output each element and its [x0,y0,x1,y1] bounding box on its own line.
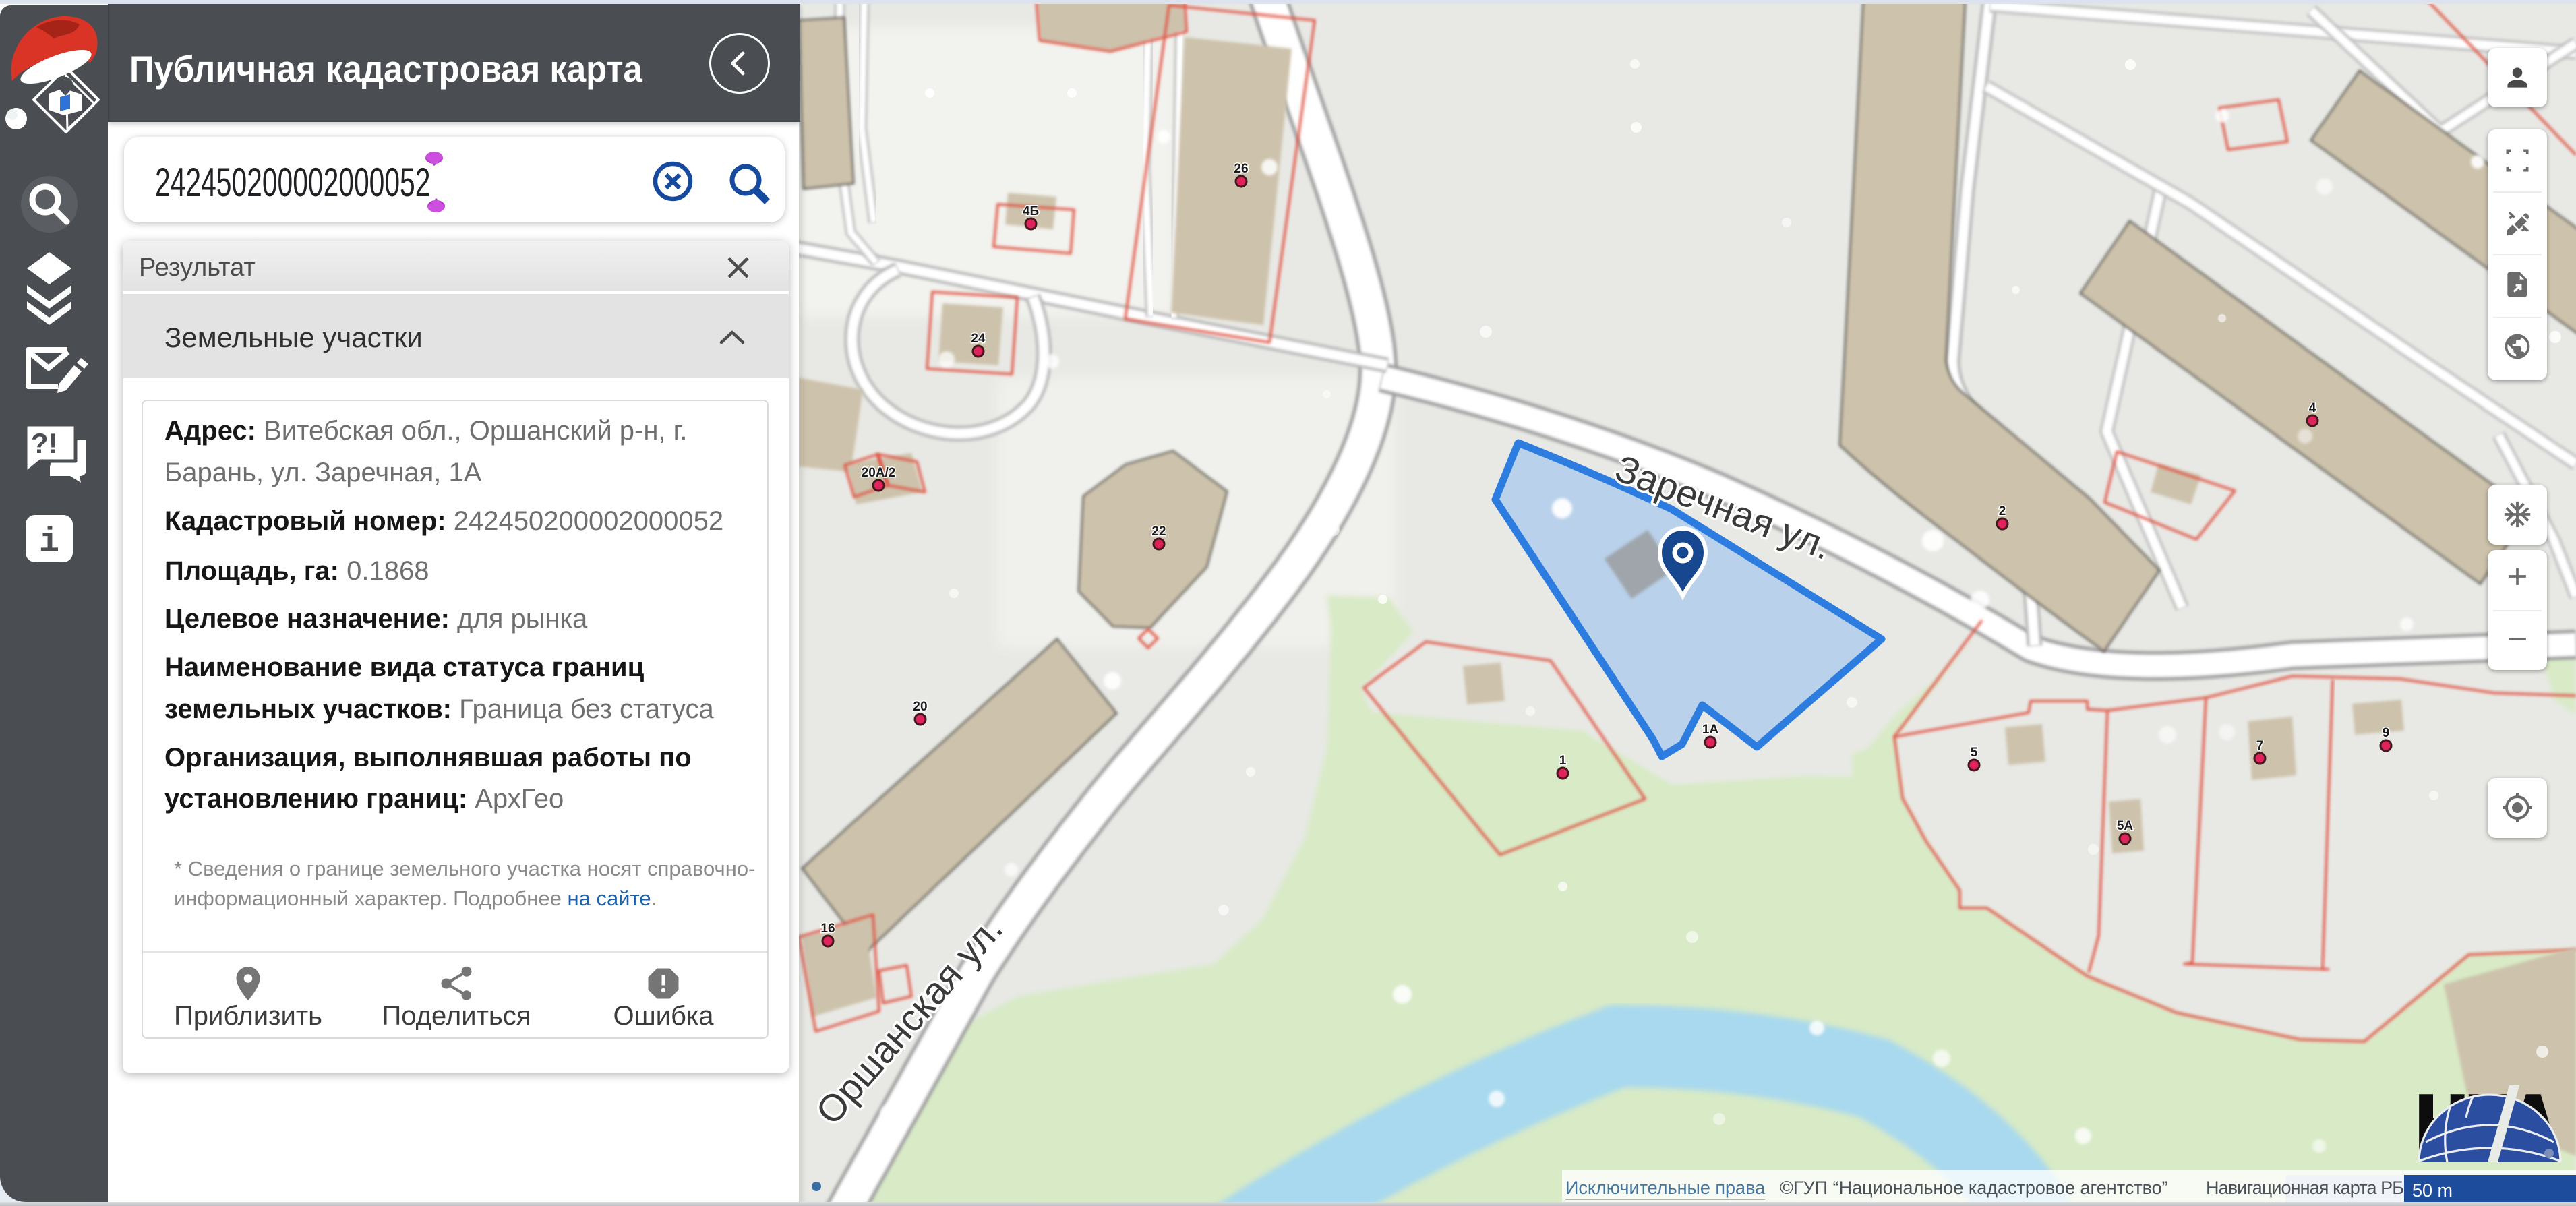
svg-text:4Б: 4Б [1023,204,1039,218]
svg-text:i: i [39,523,59,562]
svg-text:16: 16 [820,922,835,936]
svg-text:7: 7 [2256,739,2264,753]
svg-text:9: 9 [2383,726,2390,740]
svg-text:4: 4 [2309,401,2316,415]
svg-text:1А: 1А [1702,723,1719,737]
svg-text:24: 24 [971,332,986,346]
svg-text:1: 1 [1559,754,1567,768]
svg-text:20А/2: 20А/2 [862,466,896,480]
svg-text:22: 22 [1151,524,1166,539]
svg-text:20: 20 [913,700,927,714]
svg-text:5: 5 [1971,746,1978,760]
svg-text:26: 26 [1234,162,1248,176]
svg-text:?!: ?! [31,427,58,459]
svg-text:5А: 5А [2117,819,2134,833]
svg-text:2: 2 [1999,504,2006,518]
